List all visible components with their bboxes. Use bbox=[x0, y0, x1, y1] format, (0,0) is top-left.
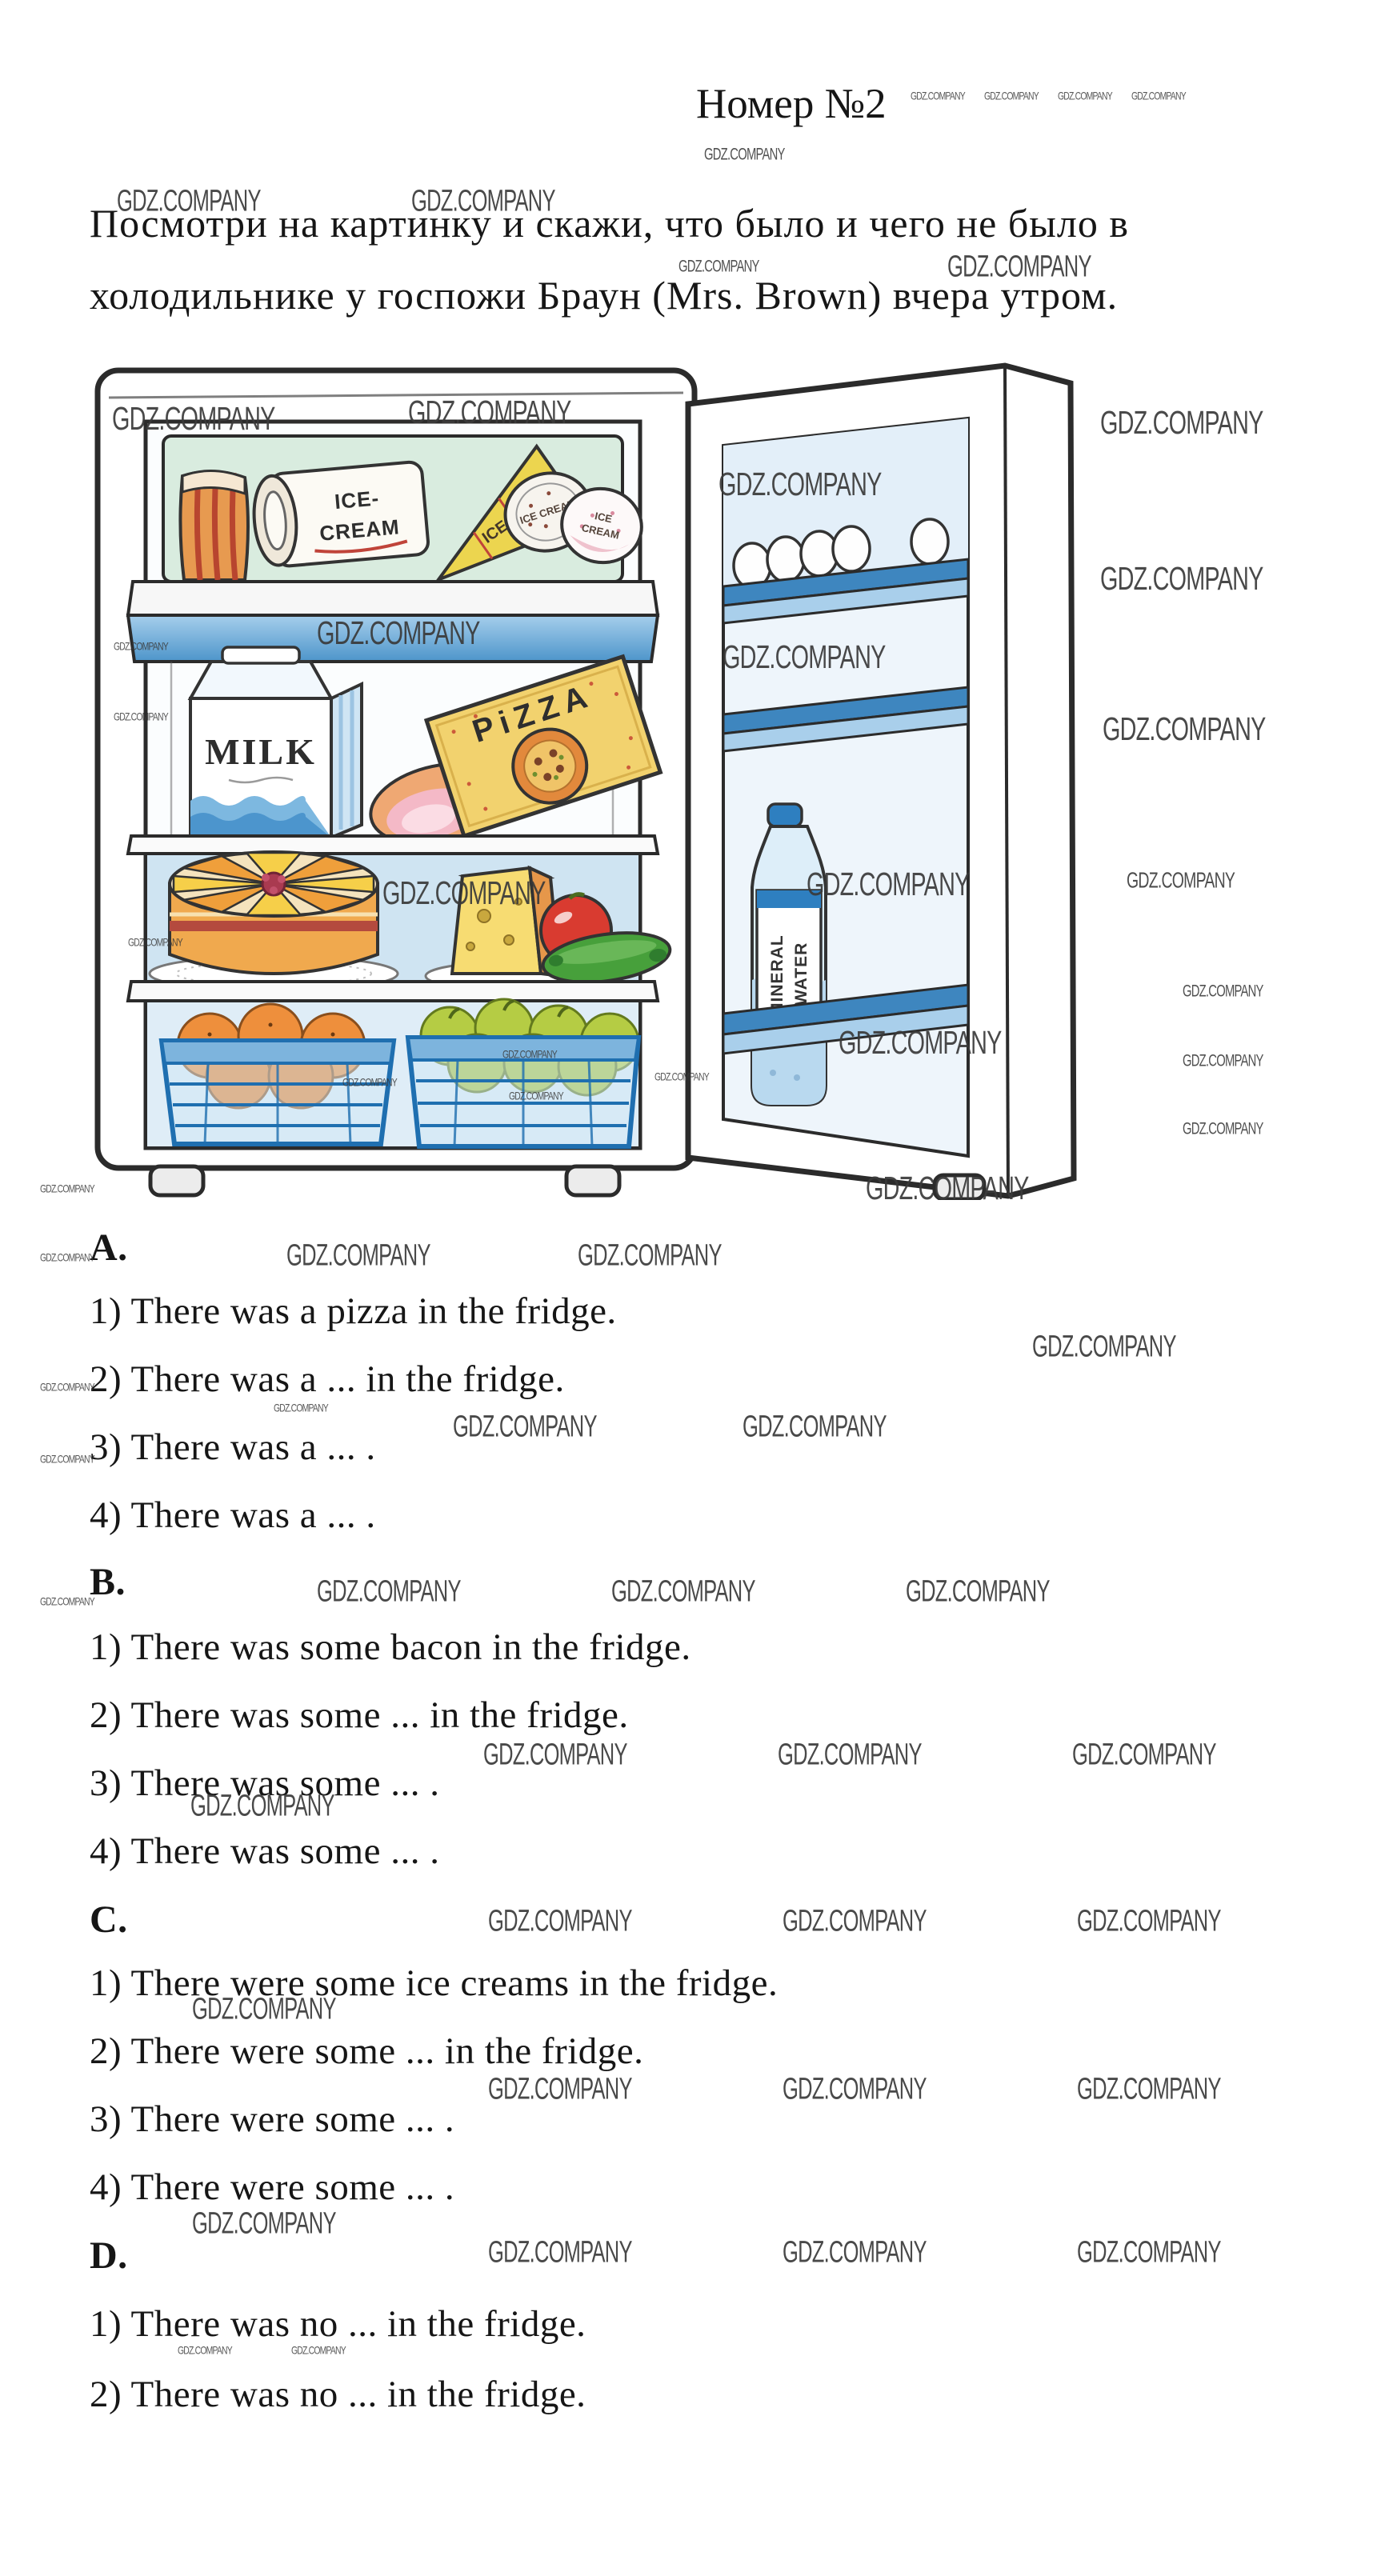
section-a-line-2: 2) There was a ... in the fridge. bbox=[90, 1358, 565, 1401]
watermark: GDZ.COMPANY bbox=[317, 1574, 461, 1610]
apple-basket bbox=[408, 999, 638, 1146]
section-c-line-1: 1) There were some ice creams in the fri… bbox=[90, 1962, 778, 2005]
fridge-illustration: ICE- CREAM ICE CREAM ICE CREAM bbox=[88, 356, 1120, 1200]
watermark: GDZ.COMPANY bbox=[291, 2344, 346, 2357]
watermark: GDZ.COMPANY bbox=[743, 1410, 887, 1445]
section-c-line-2: 2) There were some ... in the fridge. bbox=[90, 2030, 643, 2073]
watermark: GDZ.COMPANY bbox=[488, 2072, 632, 2107]
watermark: GDZ.COMPANY bbox=[40, 1182, 94, 1195]
mineral-water-bottle: MINERAL WATER bbox=[752, 804, 826, 1105]
watermark: GDZ.COMPANY bbox=[783, 2235, 927, 2270]
fridge-svg: ICE- CREAM ICE CREAM ICE CREAM bbox=[88, 356, 1120, 1200]
section-a-line-1: 1) There was a pizza in the fridge. bbox=[90, 1290, 617, 1333]
section-a-line-4: 4) There was a ... . bbox=[90, 1494, 376, 1537]
section-b-letter: B. bbox=[90, 1560, 126, 1604]
watermark: GDZ.COMPANY bbox=[192, 2206, 336, 2242]
section-b-line-4: 4) There was some ... . bbox=[90, 1830, 439, 1873]
watermark: GDZ.COMPANY bbox=[286, 1238, 430, 1274]
fridge-door: MINERAL WATER bbox=[688, 366, 1074, 1199]
milk-label: MILK bbox=[205, 731, 317, 772]
watermark: GDZ.COMPANY bbox=[578, 1238, 722, 1274]
water-label-line1: MINERAL bbox=[768, 934, 787, 1017]
watermark: GDZ.COMPANY bbox=[40, 1381, 94, 1394]
section-c-letter: C. bbox=[90, 1898, 128, 1942]
watermark: GDZ.COMPANY bbox=[1131, 90, 1186, 102]
orange-basket bbox=[162, 1004, 394, 1144]
section-a-line-3: 3) There was a ... . bbox=[90, 1426, 376, 1469]
page-title: Номер №2 bbox=[696, 80, 887, 128]
watermark: GDZ.COMPANY bbox=[1100, 404, 1263, 442]
ice-tub-label-top: ICE- bbox=[334, 486, 380, 514]
watermark: GDZ.COMPANY bbox=[453, 1410, 597, 1445]
watermark: GDZ.COMPANY bbox=[1077, 2072, 1221, 2107]
door-foot bbox=[935, 1175, 984, 1199]
instruction-line-1: Посмотри на картинку и скажи, что было и… bbox=[90, 200, 1129, 246]
watermark: GDZ.COMPANY bbox=[906, 1574, 1050, 1610]
watermark: GDZ.COMPANY bbox=[178, 2344, 232, 2357]
watermark: GDZ.COMPANY bbox=[1100, 560, 1263, 598]
watermark: GDZ.COMPANY bbox=[783, 2072, 927, 2107]
watermark: GDZ.COMPANY bbox=[704, 146, 785, 165]
watermark: GDZ.COMPANY bbox=[488, 2235, 632, 2270]
section-b-line-1: 1) There was some bacon in the fridge. bbox=[90, 1626, 691, 1669]
watermark: GDZ.COMPANY bbox=[40, 1453, 94, 1466]
worksheet-page: Номер №2 Посмотри на картинку и скажи, ч… bbox=[0, 0, 1385, 2576]
watermark: GDZ.COMPANY bbox=[1183, 1120, 1263, 1139]
section-b-line-2: 2) There was some ... in the fridge. bbox=[90, 1694, 629, 1737]
watermark: GDZ.COMPANY bbox=[1183, 1052, 1263, 1071]
section-b-line-3: 3) There was some ... . bbox=[90, 1762, 439, 1805]
fridge-foot-left bbox=[150, 1166, 203, 1195]
ice-cream-pack-orange bbox=[180, 470, 248, 580]
watermark: GDZ.COMPANY bbox=[488, 1904, 632, 1939]
watermark: GDZ.COMPANY bbox=[911, 90, 965, 102]
watermark: GDZ.COMPANY bbox=[1072, 1738, 1216, 1773]
shelf-1 bbox=[128, 582, 658, 662]
shelf-2 bbox=[128, 836, 658, 854]
section-c-line-3: 3) There were some ... . bbox=[90, 2098, 454, 2141]
watermark: GDZ.COMPANY bbox=[1032, 1330, 1176, 1365]
watermark: GDZ.COMPANY bbox=[483, 1738, 627, 1773]
watermark: GDZ.COMPANY bbox=[1127, 868, 1235, 894]
watermark: GDZ.COMPANY bbox=[778, 1738, 922, 1773]
watermark: GDZ.COMPANY bbox=[1077, 1904, 1221, 1939]
section-d-letter: D. bbox=[90, 2234, 128, 2278]
shelf-3 bbox=[128, 982, 658, 1001]
ice-cream-tub: ICE- CREAM bbox=[250, 462, 429, 569]
watermark: GDZ.COMPANY bbox=[783, 1904, 927, 1939]
watermark: GDZ.COMPANY bbox=[40, 1251, 94, 1264]
watermark: GDZ.COMPANY bbox=[611, 1574, 755, 1610]
section-d-line-2: 2) There was no ... in the fridge. bbox=[90, 2373, 586, 2416]
watermark: GDZ.COMPANY bbox=[40, 1595, 94, 1608]
watermark: GDZ.COMPANY bbox=[274, 1402, 328, 1414]
watermark: GDZ.COMPANY bbox=[1103, 710, 1265, 748]
instruction-line-2: холодильнике у госпожи Браун (Mrs. Brown… bbox=[90, 272, 1118, 318]
watermark: GDZ.COMPANY bbox=[1077, 2235, 1221, 2270]
watermark: GDZ.COMPANY bbox=[1058, 90, 1112, 102]
fridge-foot-right bbox=[566, 1166, 619, 1195]
section-a-letter: A. bbox=[90, 1226, 128, 1270]
section-d-line-1: 1) There was no ... in the fridge. bbox=[90, 2302, 586, 2346]
cake bbox=[150, 852, 398, 991]
watermark: GDZ.COMPANY bbox=[984, 90, 1039, 102]
watermark: GDZ.COMPANY bbox=[1183, 982, 1263, 1002]
section-c-line-4: 4) There were some ... . bbox=[90, 2166, 454, 2209]
water-label-line2: WATER bbox=[792, 942, 811, 1006]
